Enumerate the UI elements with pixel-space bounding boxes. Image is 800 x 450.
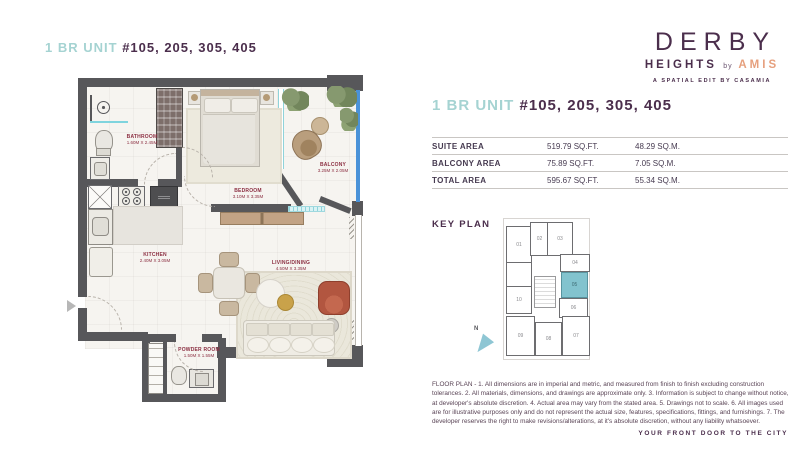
- sofa-cushion: [246, 323, 268, 336]
- brand-logo: DERBY HEIGHTS by AMIS A SPATIAL EDIT BY …: [636, 28, 788, 84]
- room-label-bedroom: BEDROOM 3.10M X 3.35M: [227, 188, 269, 199]
- sofa-cushion: [290, 323, 312, 336]
- row-label: SUITE AREA: [432, 142, 547, 151]
- toilet-tank: [96, 148, 111, 156]
- keyplan: 01 02 03 04 05 10 06 09 08 07 N: [468, 216, 596, 368]
- duvet: [203, 114, 255, 164]
- keyplan-unit-06: 06: [559, 298, 588, 318]
- keyplan-unit-07: 07: [562, 316, 590, 356]
- bathroom-vanity: [90, 157, 110, 180]
- wall-powder-bottom: [142, 394, 226, 402]
- sofa-cushion: [268, 323, 290, 336]
- dining-chair: [198, 273, 213, 293]
- unit-title-prefix: 1 BR UNIT: [432, 97, 514, 114]
- dining-chair: [219, 252, 239, 267]
- room-dims: 1.60M X 2.45M: [123, 140, 161, 145]
- tv-console: [220, 212, 304, 225]
- table-row: TOTAL AREA 595.67 SQ.FT. 55.34 SQ.M.: [432, 172, 788, 189]
- room-dims: 4.50M X 3.35M: [268, 266, 314, 271]
- row-sqm: 48.29 SQ.M.: [635, 142, 788, 151]
- bed: [200, 89, 260, 167]
- page-title-prefix: 1 BR UNIT: [45, 40, 118, 55]
- table-row: SUITE AREA 519.79 SQ.FT. 48.29 SQ.M.: [432, 137, 788, 155]
- row-sqft: 595.67 SQ.FT.: [547, 176, 635, 185]
- burner: [122, 197, 130, 205]
- keyplan-stairs-core: [534, 276, 556, 308]
- entrance-arrow-icon: [67, 300, 76, 312]
- lamp: [263, 94, 270, 101]
- floor-plan: BATHROOM 1.60M X 2.45M BEDROOM 3.10M X 3…: [78, 75, 373, 405]
- kitchen-counter: [113, 206, 183, 245]
- room-label-bathroom: BATHROOM 1.60M X 2.45M: [123, 134, 161, 145]
- page-title-numbers: #105, 205, 305, 405: [122, 40, 257, 55]
- wall-left-upper: [78, 78, 87, 297]
- logo-heights: HEIGHTS by AMIS: [636, 59, 788, 71]
- kitchen-sink-cabinet: [88, 209, 113, 245]
- room-label-powder: POWDER ROOM 1.50M X 1.55M: [178, 347, 220, 358]
- logo-derby: DERBY: [636, 28, 788, 57]
- keyplan-unit-05-highlighted: 05: [561, 272, 588, 298]
- room-dims: 3.10M X 3.35M: [227, 194, 269, 199]
- plant: [325, 86, 357, 107]
- sofa-cushion: [269, 337, 291, 353]
- north-label: N: [474, 326, 478, 332]
- lamp: [191, 94, 198, 101]
- sofa-cushion: [312, 323, 334, 336]
- shower-head-icon: [97, 101, 110, 114]
- logo-by: by: [723, 63, 732, 70]
- keyplan-unit-03: 03: [547, 222, 573, 256]
- sofa: [243, 320, 335, 356]
- coffee-table-gold: [277, 294, 294, 311]
- room-label-balcony: BALCONY 3.25M X 2.05M: [312, 162, 354, 173]
- powder-sink: [195, 373, 209, 386]
- burner: [133, 197, 141, 205]
- brochure-page: 1 BR UNIT #105, 205, 305, 405: [0, 0, 800, 450]
- washing-machine: [88, 185, 112, 209]
- room-label-living-dining: LIVING/DINING 4.50M X 3.35M: [268, 260, 314, 271]
- unit-title-numbers: #105, 205, 305, 405: [520, 97, 672, 114]
- wall-right-column: [352, 201, 363, 216]
- row-sqft: 519.79 SQ.FT.: [547, 142, 635, 151]
- kitchen-sink: [92, 217, 109, 236]
- dishwasher: [89, 247, 113, 277]
- dining-table: [213, 267, 245, 299]
- footer-slogan: YOUR FRONT DOOR TO THE CITY: [432, 430, 788, 437]
- keyplan-unit-10: 10: [506, 286, 532, 314]
- logo-tagline: A SPATIAL EDIT BY CASAMIA: [636, 78, 788, 84]
- wall-bedroom-living: [211, 204, 291, 212]
- shower-rail: [90, 95, 92, 123]
- keyplan-unit-extra: [506, 262, 532, 288]
- keyplan-unit-01: 01: [506, 226, 532, 264]
- keyplan-unit-04: 04: [560, 254, 590, 272]
- keyplan-unit-08: 08: [535, 322, 562, 356]
- row-label: TOTAL AREA: [432, 176, 547, 185]
- wall-powder-top-right: [202, 334, 222, 342]
- row-sqm: 7.05 SQ.M.: [635, 159, 788, 168]
- window-living-right: [355, 215, 362, 346]
- nightstand-right: [260, 91, 274, 105]
- logo-amis: AMIS: [738, 59, 779, 71]
- burner: [133, 188, 141, 196]
- keyplan-unit-09: 09: [506, 316, 535, 356]
- shower-glass: [90, 121, 128, 123]
- armchair: [318, 281, 350, 315]
- wall-closet-divider: [163, 342, 167, 394]
- headboard: [201, 90, 259, 96]
- room-dims: 3.25M X 2.05M: [312, 168, 354, 173]
- sofa-cushion: [313, 337, 335, 353]
- washbasin: [94, 162, 107, 176]
- wall-bottom-left: [78, 332, 148, 341]
- row-sqm: 55.34 SQ.M.: [635, 176, 788, 185]
- wall-powder-top-left: [150, 334, 176, 342]
- room-dims: 2.40M X 3.05M: [134, 258, 176, 263]
- area-table: SUITE AREA 519.79 SQ.FT. 48.29 SQ.M. BAL…: [432, 137, 788, 189]
- disclaimer-text: FLOOR PLAN - 1. All dimensions are in im…: [432, 380, 790, 426]
- stove: [118, 186, 145, 207]
- page-title: 1 BR UNIT #105, 205, 305, 405: [45, 40, 257, 55]
- logo-sub: HEIGHTS: [645, 59, 717, 71]
- plant: [281, 88, 309, 111]
- room-dims: 1.50M X 1.55M: [178, 353, 220, 358]
- pillow: [231, 98, 258, 113]
- wall-top: [78, 78, 363, 87]
- sofa-cushion: [247, 337, 269, 353]
- pillow: [204, 98, 231, 113]
- dining-chair: [219, 301, 239, 316]
- plant: [340, 105, 358, 131]
- north-arrow-icon: [472, 334, 494, 357]
- powder-toilet: [171, 366, 187, 385]
- blind-symbol-top: [349, 217, 354, 239]
- burner: [122, 188, 130, 196]
- table-row: BALCONY AREA 75.89 SQ.FT. 7.05 SQ.M.: [432, 155, 788, 172]
- row-label: BALCONY AREA: [432, 159, 547, 168]
- row-sqft: 75.89 SQ.FT.: [547, 159, 635, 168]
- sofa-cushion: [291, 337, 313, 353]
- unit-title: 1 BR UNIT #105, 205, 305, 405: [432, 97, 672, 114]
- room-label-kitchen: KITCHEN 2.40M X 3.05M: [134, 252, 176, 263]
